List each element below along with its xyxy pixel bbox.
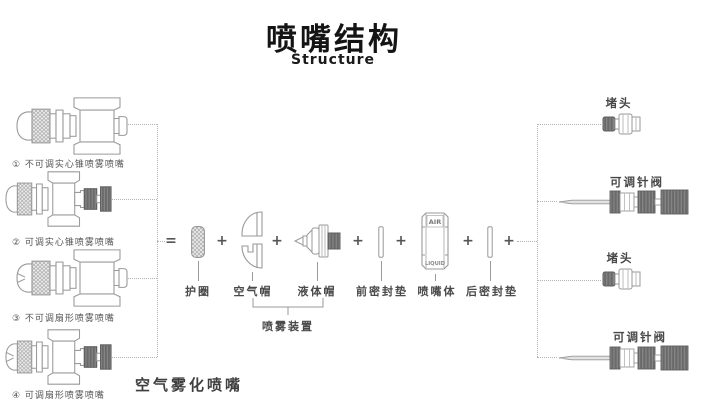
nozzle-body-label: 喷嘴体 <box>418 283 457 299</box>
nozzle-assembly-3-drawing <box>16 248 126 308</box>
plus-sign: + <box>216 233 228 249</box>
connector-line <box>537 124 601 125</box>
plus-sign: + <box>271 233 283 249</box>
needle-valve-icon <box>558 189 690 215</box>
connector-line <box>126 124 157 125</box>
plus-sign: + <box>503 233 515 249</box>
nozzle-body-liquid-marking: LIQUID <box>425 261 446 267</box>
air-cap-label: 空气帽 <box>234 283 273 299</box>
retaining-ring-label: 护圈 <box>185 283 211 299</box>
liquid-cap-drawing <box>293 223 341 259</box>
nozzle-assembly-2-label: ② 可调实心锥喷雾喷嘴 <box>12 235 115 248</box>
nozzle-structure-diagram: 喷嘴结构 Structure ① 不可调实心锥喷雾喷嘴 ② 可调实心锥喷雾喷嘴 … <box>0 0 702 415</box>
nozzle-assembly-3-label: ③ 不可调扇形喷雾喷嘴 <box>12 311 115 324</box>
plug-icon <box>602 113 642 135</box>
spray-device-group-label: 喷雾装置 <box>262 318 314 334</box>
connector-line <box>517 241 537 242</box>
connector-line <box>112 357 157 358</box>
equals-sign: = <box>165 233 177 249</box>
needle-valve-icon <box>558 345 690 371</box>
plus-sign: + <box>395 233 407 249</box>
rear-gasket-drawing <box>487 226 493 258</box>
retaining-ring-drawing <box>191 226 205 258</box>
leader-line <box>435 274 436 281</box>
connector-line <box>157 241 165 242</box>
liquid-cap-label: 液体帽 <box>298 283 337 299</box>
air-atomizing-nozzle-label: 空气雾化喷嘴 <box>135 374 243 395</box>
needle-valve-2-label: 可调针阀 <box>613 329 667 345</box>
leader-line <box>381 261 382 281</box>
plus-sign: + <box>352 233 364 249</box>
connector-line <box>126 278 157 279</box>
rear-gasket-label: 后密封垫 <box>466 283 518 299</box>
nozzle-assembly-4-label: ④ 可调扇形喷雾喷嘴 <box>12 388 105 401</box>
spray-device-bracket <box>252 298 324 316</box>
connector-line <box>537 357 557 358</box>
page-subtitle: Structure <box>291 52 375 68</box>
nozzle-assembly-2-drawing <box>5 169 112 229</box>
connector-line <box>537 201 557 202</box>
connector-line <box>537 280 601 281</box>
needle-valve-1-label: 可调针阀 <box>610 174 664 190</box>
plug-1-label: 堵头 <box>606 95 633 111</box>
front-gasket-drawing <box>378 226 384 258</box>
leader-line <box>252 272 253 281</box>
front-gasket-label: 前密封垫 <box>356 283 408 299</box>
leader-line <box>317 262 318 281</box>
plug-2-label: 堵头 <box>607 250 634 266</box>
leader-line <box>490 261 491 281</box>
nozzle-assembly-1-drawing <box>16 96 126 156</box>
leader-line <box>198 261 199 281</box>
nozzle-assembly-4-drawing <box>5 327 112 387</box>
air-cap-drawing <box>240 211 264 269</box>
nozzle-body-air-marking: AIR <box>429 218 441 226</box>
connector-line <box>112 199 157 200</box>
plus-sign: + <box>462 233 474 249</box>
connector-line <box>537 124 538 357</box>
nozzle-body-drawing: AIR LIQUID <box>420 211 450 271</box>
plug-icon <box>602 268 642 290</box>
